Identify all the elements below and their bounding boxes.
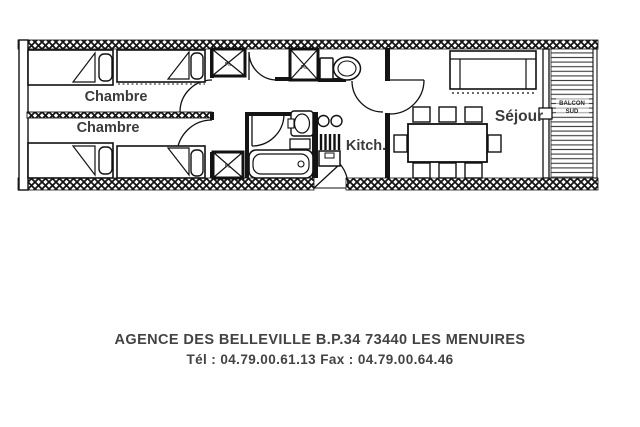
oven-handle: [325, 153, 334, 158]
bottom-wall-left: [18, 178, 314, 190]
chair: [439, 107, 456, 122]
kitchenette: [318, 116, 342, 167]
balcony-label-2: SUD: [566, 109, 579, 115]
dining-table: [408, 124, 487, 162]
wc: [320, 57, 361, 80]
label-bedroom-top: Chambre: [85, 89, 148, 105]
vestibule-door: [249, 52, 277, 80]
wc-door: [352, 81, 383, 112]
sofa: [450, 51, 536, 93]
bathroom: [249, 111, 313, 178]
agency-caption: AGENCE DES BELLEVILLE B.P.34 73440 LES M…: [0, 332, 640, 367]
agency-address-line: AGENCE DES BELLEVILLE B.P.34 73440 LES M…: [0, 332, 640, 348]
sink-bowl-1: [318, 116, 329, 127]
label-bedroom-bottom: Chambre: [77, 120, 140, 136]
closet-top-middle: Pl.: [290, 49, 318, 80]
chair: [488, 135, 501, 152]
floor-plan-page: BALCON SUD Pl.: [0, 0, 640, 427]
balcony: BALCON SUD: [539, 49, 597, 178]
chair: [394, 135, 407, 152]
chair: [465, 163, 482, 178]
chair: [413, 163, 430, 178]
balcony-rail: [593, 49, 597, 178]
entrance-door: [314, 164, 348, 188]
bathtub: [249, 150, 313, 178]
sink-bowl-2: [331, 116, 342, 127]
toilet-bowl-inner: [338, 61, 356, 76]
closet-label: Pl.: [225, 164, 232, 170]
chair: [465, 107, 482, 122]
toilet-tank: [320, 58, 333, 79]
bottom-wall-right: [346, 178, 598, 190]
bedroom-divider-wall: [27, 112, 212, 118]
stove-grill: [321, 134, 339, 150]
label-living-room: Séjour: [495, 108, 543, 125]
bathroom-door: [252, 114, 284, 146]
chair: [413, 107, 430, 122]
closet-label: Pl.: [301, 65, 308, 71]
closet-label: Pl.: [225, 62, 232, 68]
closet-top-left: Pl.: [212, 49, 245, 76]
dining-set: [394, 107, 501, 178]
label-kitchen: Kitch.: [346, 138, 386, 154]
balcony-label-1: BALCON: [559, 101, 585, 107]
washbasin: [288, 111, 313, 136]
bed-top-1: [28, 50, 113, 85]
wall-hall-mid: [210, 112, 214, 120]
bedroom1-door: [180, 80, 212, 112]
bed-bottom-1: [28, 143, 113, 178]
wall-wc-east: [385, 48, 390, 81]
agency-phone-line: Tél : 04.79.00.61.13 Fax : 04.79.00.64.4…: [0, 352, 640, 367]
chair: [439, 163, 456, 178]
closet-bottom: Pl.: [213, 152, 243, 178]
bath-shelf: [290, 139, 310, 149]
bed-bottom-2: [117, 146, 205, 178]
bed-top-2: [117, 50, 205, 84]
